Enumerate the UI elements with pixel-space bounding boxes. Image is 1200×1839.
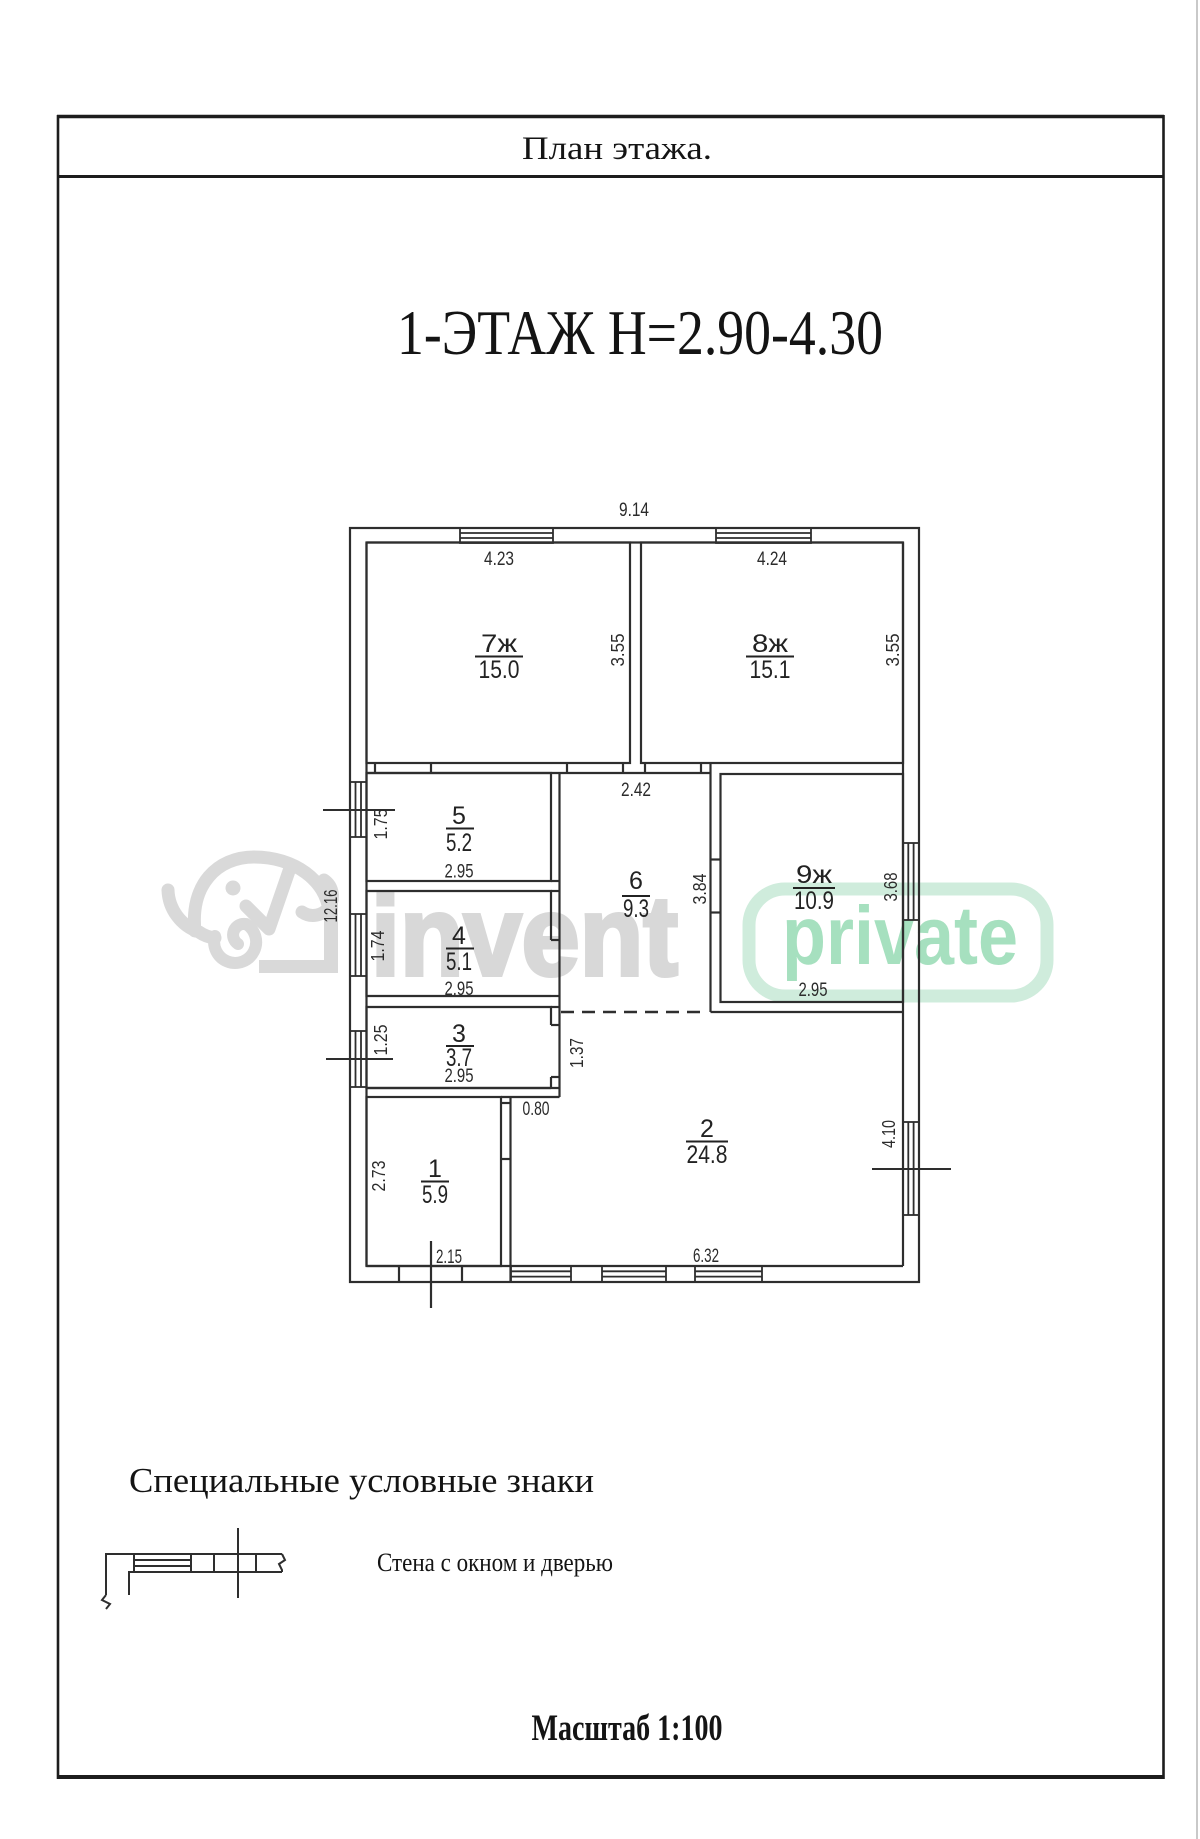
svg-text:1.25: 1.25 bbox=[370, 1025, 391, 1056]
svg-text:3.68: 3.68 bbox=[880, 873, 901, 902]
svg-text:8ж: 8ж bbox=[752, 630, 788, 658]
svg-text:3.7: 3.7 bbox=[446, 1044, 472, 1072]
svg-text:План этажа.: План этажа. bbox=[522, 131, 712, 167]
svg-text:12.16: 12.16 bbox=[321, 890, 341, 923]
svg-text:3.55: 3.55 bbox=[607, 634, 628, 667]
svg-text:1.37: 1.37 bbox=[566, 1038, 587, 1068]
svg-text:1.75: 1.75 bbox=[370, 809, 391, 840]
svg-text:1-ЭТАЖ Н=2.90-4.30: 1-ЭТАЖ Н=2.90-4.30 bbox=[397, 297, 883, 368]
svg-text:Стена с окном и дверью: Стена с окном и дверью bbox=[377, 1548, 613, 1577]
svg-text:6: 6 bbox=[629, 867, 643, 895]
svg-text:15.1: 15.1 bbox=[750, 656, 791, 684]
svg-text:2.95: 2.95 bbox=[445, 861, 474, 883]
svg-text:2.15: 2.15 bbox=[436, 1246, 462, 1268]
svg-text:2.95: 2.95 bbox=[445, 978, 474, 1000]
svg-text:3.55: 3.55 bbox=[882, 634, 903, 667]
svg-text:1: 1 bbox=[428, 1155, 442, 1183]
svg-text:4.24: 4.24 bbox=[757, 548, 787, 570]
svg-text:15.0: 15.0 bbox=[479, 656, 520, 684]
svg-text:9ж: 9ж bbox=[796, 861, 832, 889]
svg-text:4: 4 bbox=[452, 922, 466, 950]
svg-text:Масштаб 1:100: Масштаб 1:100 bbox=[532, 1708, 723, 1749]
svg-text:3.84: 3.84 bbox=[689, 874, 710, 905]
svg-text:Специальные условные знаки: Специальные условные знаки bbox=[129, 1461, 594, 1500]
svg-text:24.8: 24.8 bbox=[687, 1141, 728, 1169]
svg-text:4.10: 4.10 bbox=[878, 1120, 899, 1148]
svg-text:10.9: 10.9 bbox=[794, 887, 834, 915]
svg-text:2.42: 2.42 bbox=[621, 779, 651, 801]
svg-text:9.3: 9.3 bbox=[623, 895, 649, 923]
svg-text:2.95: 2.95 bbox=[799, 979, 828, 1001]
svg-text:1.74: 1.74 bbox=[367, 931, 388, 962]
svg-text:9.14: 9.14 bbox=[619, 499, 649, 521]
svg-text:5.2: 5.2 bbox=[446, 829, 472, 857]
svg-text:2: 2 bbox=[700, 1115, 714, 1143]
svg-text:5.9: 5.9 bbox=[422, 1181, 448, 1209]
svg-text:7ж: 7ж bbox=[481, 630, 517, 658]
svg-text:2.73: 2.73 bbox=[368, 1161, 389, 1192]
svg-text:5.1: 5.1 bbox=[446, 948, 472, 976]
svg-text:5: 5 bbox=[452, 802, 466, 830]
svg-text:4.23: 4.23 bbox=[484, 548, 514, 570]
svg-text:6.32: 6.32 bbox=[693, 1245, 719, 1267]
svg-text:0.80: 0.80 bbox=[523, 1098, 550, 1120]
